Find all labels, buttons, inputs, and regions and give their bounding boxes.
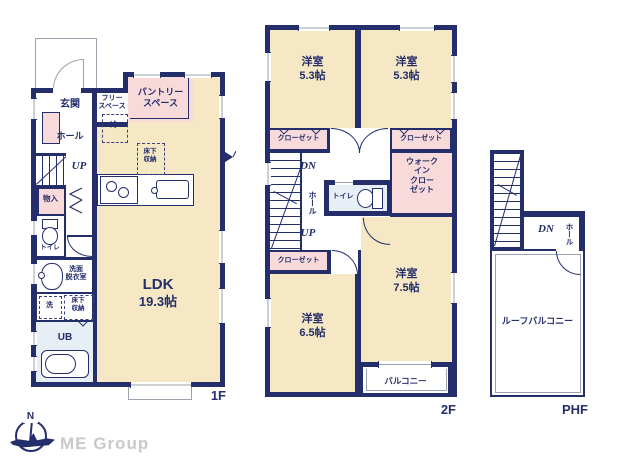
window <box>298 25 330 31</box>
room-label-washroom: 洗面 脱衣室 <box>58 266 94 283</box>
room-label-toilet-2f: トイレ <box>329 193 357 201</box>
room-label-bedroom1-size: 5.3帖 <box>270 70 355 83</box>
room-label-bedroom4-size: 6.5帖 <box>270 327 355 340</box>
room-label-bedroom2: 洋室 <box>361 56 452 69</box>
wall-phf-hall-right <box>579 211 585 251</box>
room-label-ldk: LDK <box>110 276 206 294</box>
window <box>184 72 212 78</box>
sink-faucet-icon <box>151 187 158 194</box>
stairs-up-label-1f: UP <box>66 160 92 172</box>
toilet-tank-icon-2f <box>372 188 383 209</box>
label-underfloor-2: 床下 収納 <box>64 297 92 312</box>
door-flag-icon <box>222 149 236 165</box>
entrance-opening <box>53 88 81 94</box>
window <box>31 98 37 120</box>
label-fridge: 冷 <box>102 121 126 130</box>
entrance-step <box>128 387 192 400</box>
window <box>451 92 457 120</box>
window <box>334 180 354 185</box>
hall-label-phf: ホール <box>560 217 573 251</box>
window <box>219 230 225 264</box>
window <box>31 331 37 346</box>
window <box>31 356 37 372</box>
window <box>219 95 225 119</box>
floor-label-1f: 1F <box>198 388 226 403</box>
stairs-1f <box>36 156 66 185</box>
stairs-dn-label-phf: DN <box>535 223 557 235</box>
window <box>31 220 37 236</box>
room-label-bedroom1: 洋室 <box>270 56 355 69</box>
label-laundry: 洗 <box>39 302 60 310</box>
closet-label-right: クローゼット <box>392 135 450 143</box>
room-label-free-space: フリー スペース <box>93 95 131 112</box>
stove-burner-icon-1 <box>106 181 117 192</box>
roof-balcony-label: ルーフバルコニー <box>492 316 583 327</box>
sink-icon <box>156 180 189 199</box>
toilet-door-leaf <box>67 235 92 237</box>
window <box>133 72 161 78</box>
window <box>219 288 225 324</box>
room-label-storage: 物入 <box>37 195 64 204</box>
stove-burner-icon-2 <box>118 187 129 198</box>
window <box>399 25 435 31</box>
window <box>265 162 271 186</box>
floor-label-2f: 2F <box>428 402 456 417</box>
floor-label-phf: PHF <box>550 402 588 417</box>
bifold-door-icon <box>68 187 83 214</box>
room-label-hall-1f: ホール <box>48 131 92 142</box>
room-label-unit-bath: UB <box>40 332 90 344</box>
stairs-phf <box>494 154 520 247</box>
closet-label-bottom: クローゼット <box>270 257 327 265</box>
toilet-bowl-icon <box>42 227 58 245</box>
compass-north-label: N <box>23 411 38 423</box>
bathtub-inner-icon <box>45 354 76 374</box>
window <box>31 263 37 285</box>
room-label-bedroom3: 洋室 <box>361 268 452 281</box>
label-walk-in-closet: ウォーク イン クロー ゼット <box>392 157 452 195</box>
balcony-label: バルコニー <box>363 376 448 386</box>
floor-plan-page: 玄関 フリー スペース パントリー スペース ホール UP 物入 トイレ 洗面 … <box>0 0 620 465</box>
stairs-up-label-2f: UP <box>297 227 319 239</box>
washbasin-faucet-icon <box>38 272 45 279</box>
company-name: ME Group <box>60 434 200 454</box>
room-label-bedroom2-size: 5.3帖 <box>361 70 452 83</box>
room-label-pantry: パントリー スペース <box>128 87 193 108</box>
room-label-bedroom3-size: 7.5帖 <box>361 282 452 295</box>
room-label-entrance: 玄関 <box>48 99 92 111</box>
stairs-dn-label-2f: DN <box>297 160 319 172</box>
balcony-sliding-door <box>378 361 432 368</box>
label-underfloor-1: 床下 収納 <box>137 148 163 163</box>
closet-label-left: クローゼット <box>270 135 327 143</box>
hall-label-2f: ホール <box>304 182 317 224</box>
room-label-toilet-1f: トイレ <box>34 244 66 252</box>
room-label-ldk-size: 19.3帖 <box>110 294 206 309</box>
room-label-bedroom4: 洋室 <box>270 313 355 326</box>
